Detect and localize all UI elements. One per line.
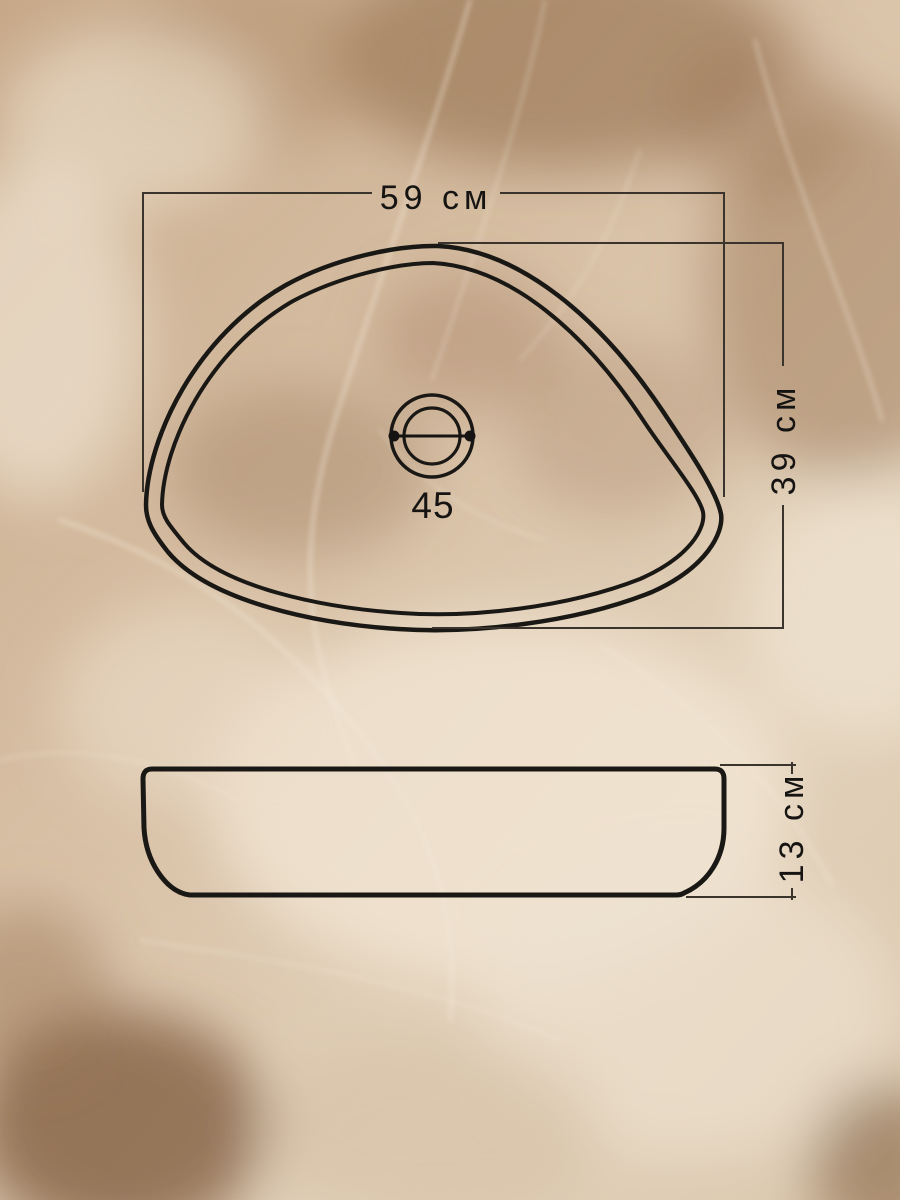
drain-diameter-endpoint-dot-left (389, 431, 400, 442)
screenshot-canvas: 45 59 см 39 см 13 см (0, 0, 900, 1200)
depth-dimension-label: 39 см (765, 383, 803, 496)
drain-diameter-endpoint-dot-right (465, 431, 476, 442)
width-dimension-label: 59 см (380, 179, 493, 217)
drain-diameter-label: 45 (411, 485, 454, 526)
sink-dimension-drawing: 45 59 см 39 см 13 см (0, 0, 900, 1200)
height-dimension-label: 13 см (773, 771, 811, 884)
